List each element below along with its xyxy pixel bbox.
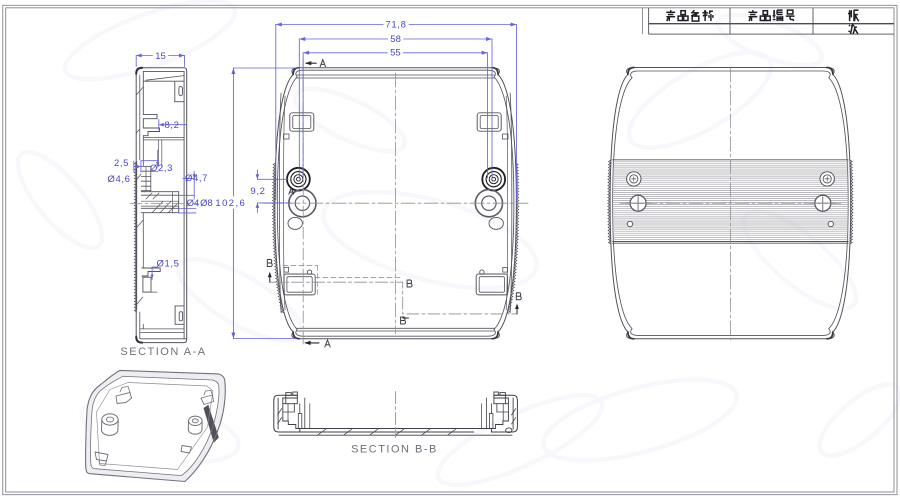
svg-text:Ø8: Ø8 — [200, 198, 213, 209]
svg-text:58: 58 — [390, 34, 401, 45]
svg-text:2,5: 2,5 — [114, 158, 129, 169]
svg-text:Ø4: Ø4 — [187, 198, 200, 209]
svg-text:55: 55 — [390, 48, 401, 59]
svg-text:8,2: 8,2 — [164, 120, 179, 131]
svg-text:Ø4,7: Ø4,7 — [185, 173, 208, 184]
svg-text:102,6: 102,6 — [215, 198, 246, 209]
svg-text:Ø4,6: Ø4,6 — [108, 174, 131, 185]
svg-text:71,8: 71,8 — [385, 19, 406, 30]
svg-text:9,2: 9,2 — [250, 186, 265, 197]
svg-text:SECTION B-B: SECTION B-B — [351, 444, 438, 456]
svg-text:SECTION A-A: SECTION A-A — [120, 346, 206, 358]
svg-text:Ø2,3: Ø2,3 — [150, 163, 173, 174]
svg-text:15: 15 — [155, 51, 166, 62]
svg-text:Ø1,5: Ø1,5 — [157, 258, 180, 269]
